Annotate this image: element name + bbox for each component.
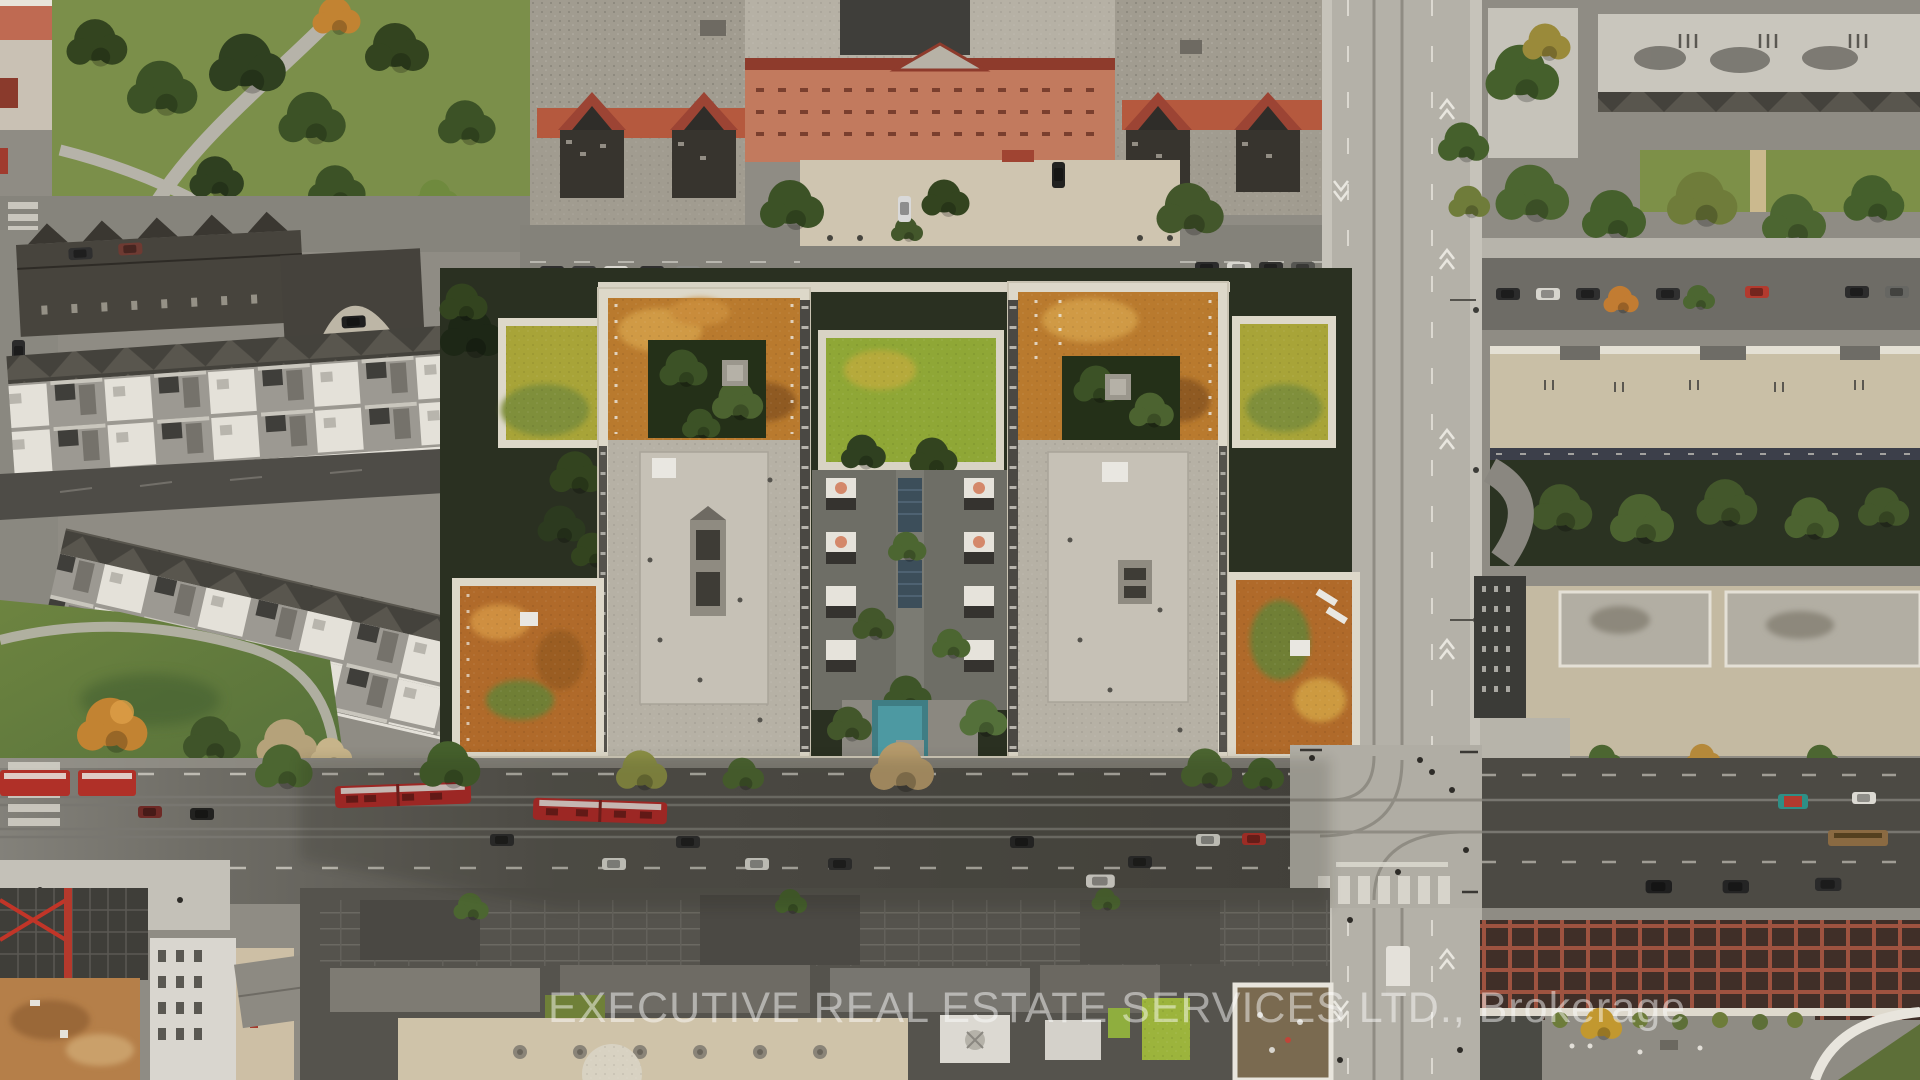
green-roof-wing-northeast (1232, 316, 1336, 448)
green-roof-wing-southwest (452, 578, 604, 760)
commercial-rooftops-south (150, 888, 1331, 1080)
heritage-apartment-complex (530, 0, 1330, 246)
east-mid-blocks (1474, 346, 1920, 775)
aerial-photo: EXECUTIVE REAL ESTATE SERVICES LTD., Bro… (0, 0, 1920, 1080)
small-dark-building (1474, 576, 1526, 718)
construction-site-southwest (0, 888, 148, 1080)
apartment-entry-court (760, 150, 1224, 246)
main-street-east-segment (1482, 758, 1920, 929)
taxi (1778, 794, 1808, 809)
green-roof-wing-southeast (1228, 572, 1360, 762)
aerial-photo-canvas (0, 0, 1920, 1080)
subject-property (440, 268, 1361, 774)
bus (1828, 830, 1888, 846)
condo-tower-east (1008, 282, 1228, 762)
arch-building (280, 248, 424, 341)
condo-tower-west (598, 288, 810, 760)
courtyard-amenity-deck (812, 330, 1008, 774)
building-shadow (300, 758, 1330, 908)
white-truck (1386, 946, 1410, 996)
streetcar-partial (0, 770, 136, 796)
